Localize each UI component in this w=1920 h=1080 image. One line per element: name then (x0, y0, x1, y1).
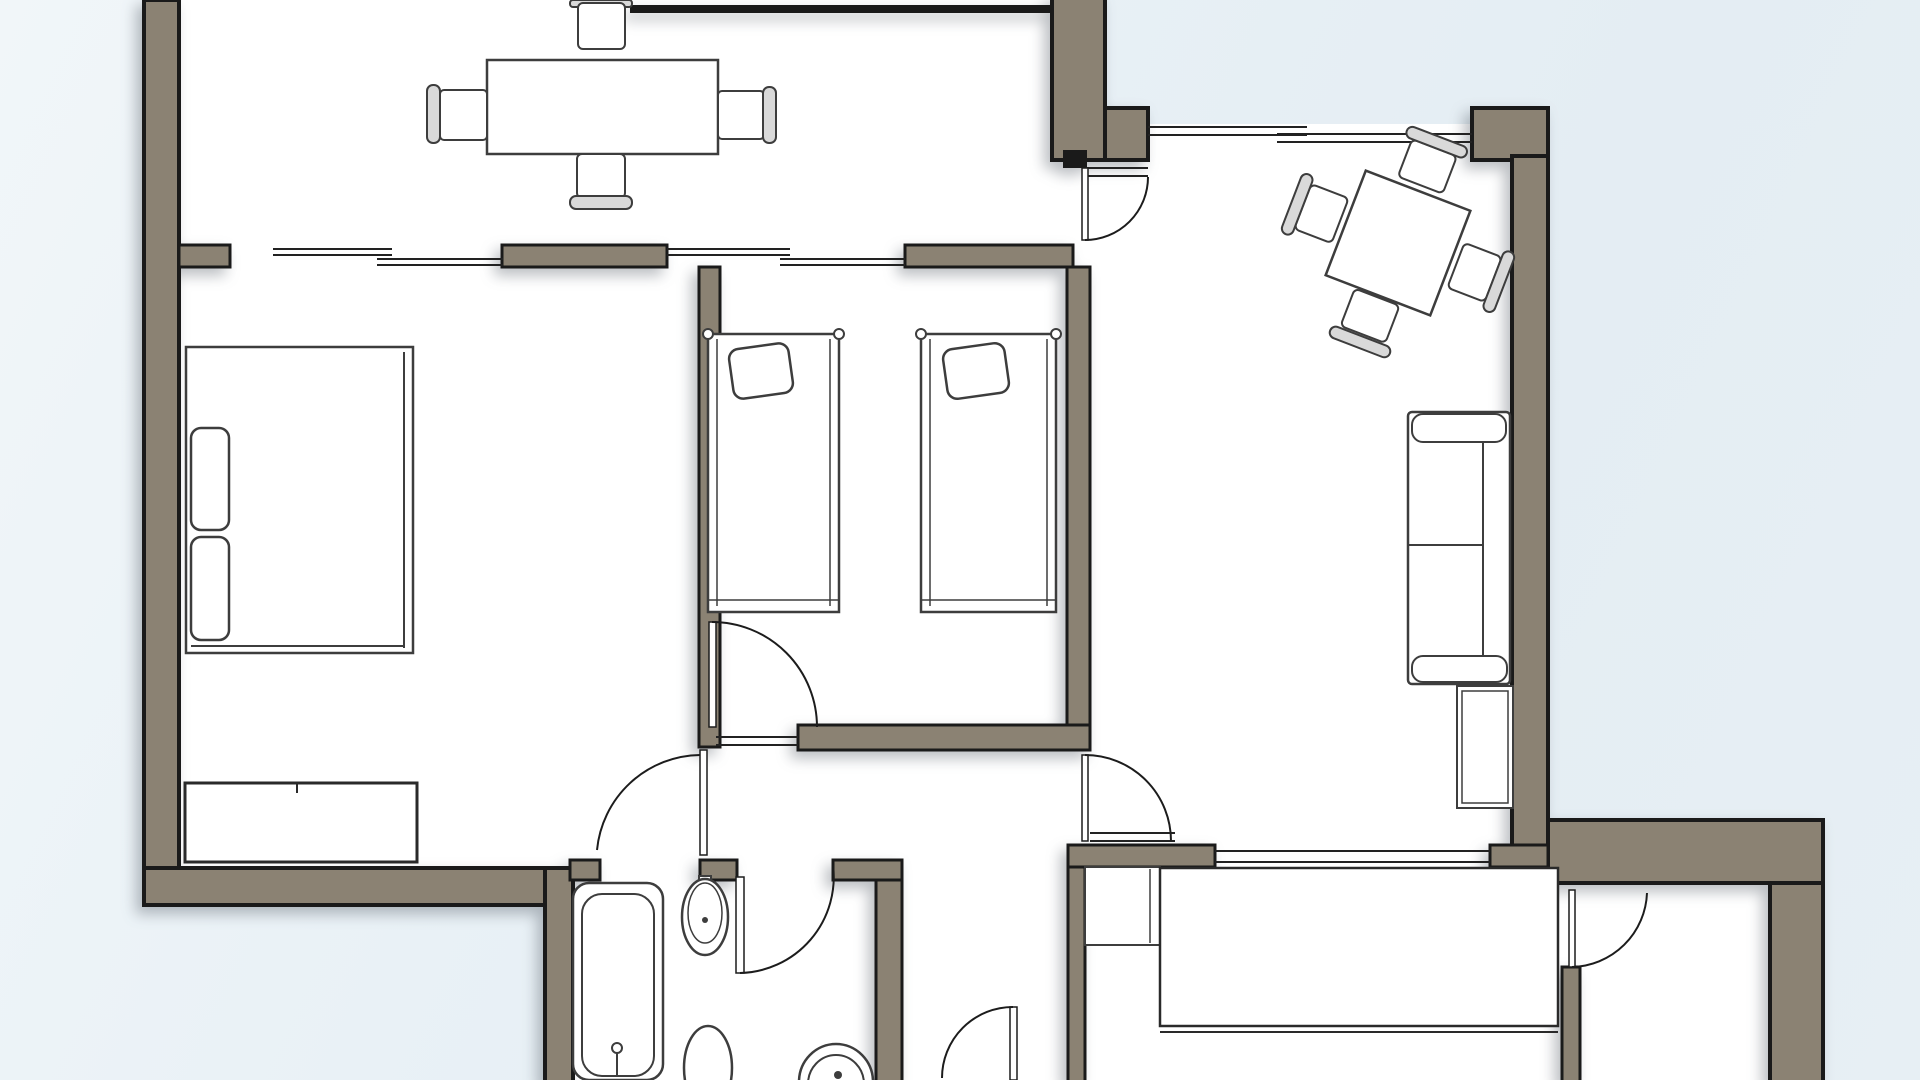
kitchen-chair-bottom-back (570, 196, 632, 209)
entry-wall-step (1105, 108, 1148, 160)
single-bed-1-post-left (703, 329, 713, 339)
outer-wall-left (144, 0, 179, 905)
outer-wall-bottom-right-vertical (1770, 883, 1823, 1080)
entry-door-panel (1082, 168, 1088, 240)
bedroom2-bed (1160, 868, 1558, 1026)
children-door-panel (709, 622, 716, 727)
outer-wall-bottom-left (144, 868, 573, 905)
double-bed-pillow-2 (191, 537, 229, 640)
floor-plan-canvas (0, 0, 1920, 1080)
double-bed-pillow-1 (191, 428, 229, 530)
bathroom-wall-top-right (833, 860, 902, 880)
kitchen-chair-right-seat (718, 91, 764, 139)
basin-dot (702, 917, 708, 923)
bathroom-door-panel (736, 877, 744, 973)
sofa-body (1408, 412, 1510, 684)
entry-wall-bar (1052, 0, 1105, 160)
kitchen-chair-left-back (427, 85, 440, 143)
corner-wall-top-right (1472, 108, 1548, 160)
wall-stub-bedroom2 (1562, 967, 1580, 1080)
outer-wall-bathroom-left (545, 868, 573, 1080)
outer-wall-right (1512, 156, 1548, 850)
bathroom-wall-top-left (570, 860, 600, 880)
hall-living-door-panel (1082, 755, 1088, 841)
sofa-armrest-bottom (1412, 656, 1507, 682)
bedroom2-closet (1085, 867, 1160, 945)
single-bed-2-pillow (942, 342, 1010, 400)
wardrobe (185, 783, 417, 862)
hallway-wall-vertical (1068, 845, 1085, 1080)
children-wall-bottom (798, 725, 1090, 750)
hallway-wall-horizontal (1068, 845, 1215, 867)
single-bed-1-pillow (728, 342, 794, 400)
kitchen-table (487, 60, 718, 154)
floor-plan-drawing (0, 0, 1920, 1080)
kitchen-chair-top-seat (578, 3, 625, 49)
kitchen-chair-left-seat (440, 90, 487, 140)
toilet-2-dot (834, 1071, 842, 1079)
top-cut-wall-line (630, 5, 1052, 13)
side-table (1457, 686, 1513, 808)
outer-wall-bottom-right-horizontal (1548, 820, 1823, 883)
single-bed-2-post-left (916, 329, 926, 339)
bathroom-wall-right (876, 877, 902, 1080)
entry-hinge-stub (1063, 150, 1087, 168)
bedroom-door-panel (700, 750, 707, 855)
wall-piece-bottom-window-right (1490, 845, 1548, 867)
children-wall-top (905, 245, 1073, 267)
children-wall-right (1067, 267, 1090, 747)
kitchen-chair-bottom-seat (577, 154, 625, 198)
kitchen-chair-right-back (763, 87, 776, 143)
hallway-bottom-door-panel (1010, 1007, 1017, 1080)
divider-wall-mid (502, 245, 667, 267)
divider-wall-stub-left (179, 245, 230, 267)
sofa-armrest-top (1412, 414, 1506, 442)
bedroom2-door-panel (1569, 890, 1575, 967)
single-bed-1-post-right (834, 329, 844, 339)
bathtub-drain (612, 1043, 622, 1053)
single-bed-2-post-right (1051, 329, 1061, 339)
